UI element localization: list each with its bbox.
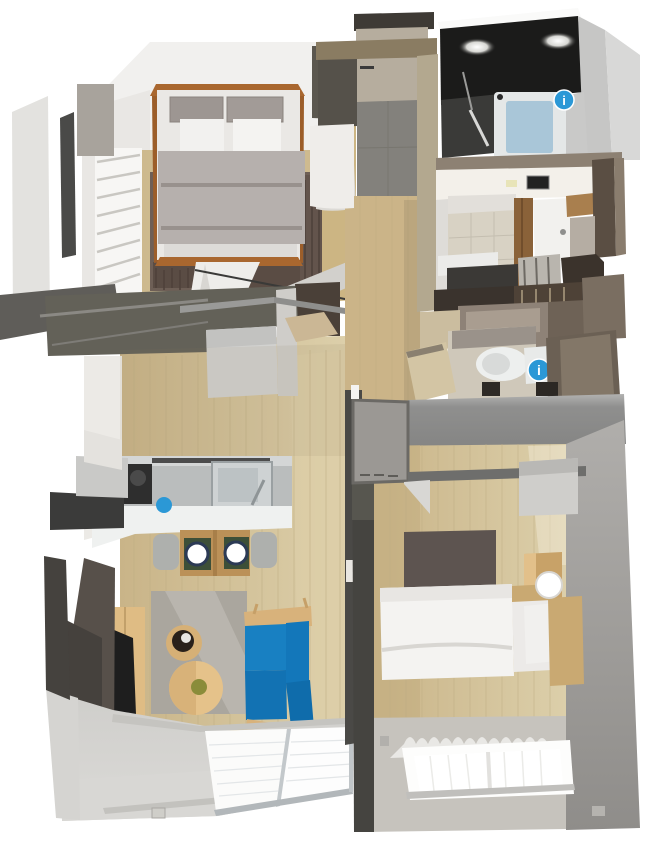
svg-text:i: i — [562, 93, 566, 108]
svg-text:i: i — [537, 362, 541, 378]
